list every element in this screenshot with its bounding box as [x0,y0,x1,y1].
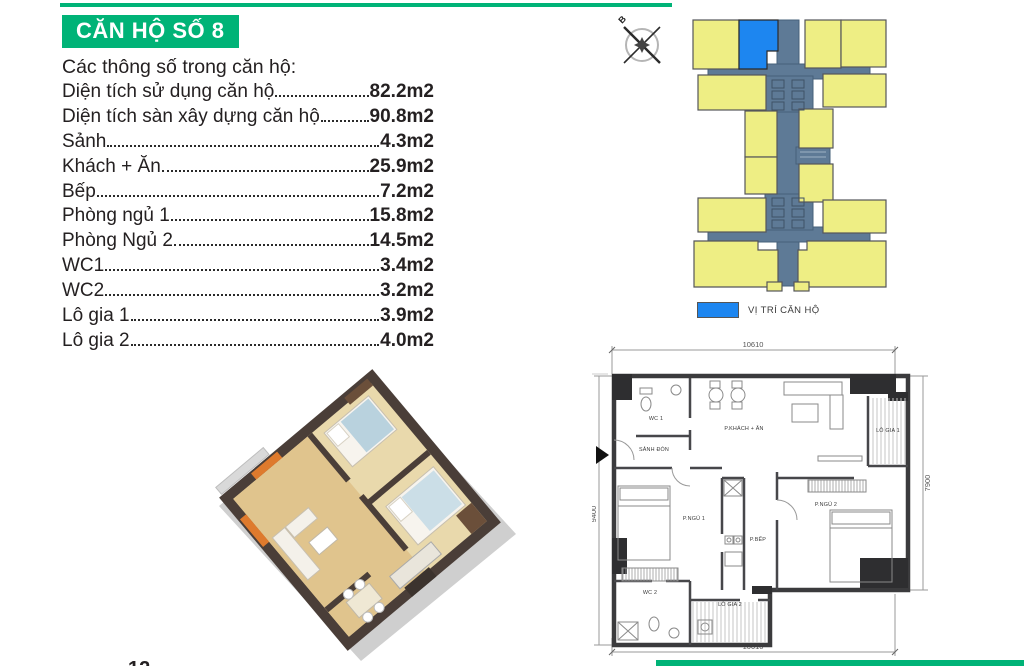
spec-row: Phòng ngủ 115.8m2 [62,204,434,229]
legend-label: VỊ TRÍ CĂN HỘ [748,305,820,316]
spec-row: Diện tích sàn xây dựng căn hộ90.8m2 [62,105,434,130]
page-number: 12 [128,659,168,666]
spec-row: Diện tích sử dụng căn hộ82.2m2 [62,80,434,105]
spec-row: WC13.4m2 [62,254,434,279]
bottom-divider-rule [656,660,1024,666]
spec-row: WC23.2m2 [62,279,434,304]
dotted-leader [275,95,368,97]
building-site-plan [688,12,893,297]
spec-value: 3.9m2 [380,304,434,329]
spec-label: Lô gia 2 [62,329,130,354]
spec-label: WC1 [62,254,104,279]
room-label-logia1: LÔ GIA 1 [876,427,900,434]
spec-value: 90.8m2 [370,105,434,130]
spec-label: Sảnh [62,130,106,155]
logia2-floor [692,602,768,643]
room-label-bep: P.BẾP [750,536,766,543]
legend: VỊ TRÍ CĂN HỘ [697,302,820,318]
spec-row: Lô gia 24.0m2 [62,329,434,354]
dotted-leader [162,170,369,172]
spec-label: Khách + Ăn [62,155,161,180]
spec-value: 14.5m2 [370,229,434,254]
room-label-sanh-don: SẢNH ĐÓN [639,446,669,453]
spec-value: 82.2m2 [370,80,434,105]
spec-row: Phòng Ngủ 214.5m2 [62,229,434,254]
dotted-leader [174,244,369,246]
dim-right: 7900 [923,475,932,492]
top-divider-rule [60,3,672,7]
dotted-leader [107,145,379,147]
dotted-leader [321,120,369,122]
spec-row: Lô gia 13.9m2 [62,304,434,329]
dim-left: 9400 [592,506,598,523]
dim-top: 10610 [743,340,764,349]
spec-label: Lô gia 1 [62,304,130,329]
room-label-khach-an: P.KHÁCH + ĂN [724,425,763,432]
spec-row: Bếp7.2m2 [62,180,434,205]
brochure-page: CĂN HỘ SỐ 8 Các thông số trong căn hộ: D… [0,0,1024,666]
spec-label: WC2 [62,279,104,304]
spec-label: Diện tích sử dụng căn hộ [62,80,274,105]
spec-label: Phòng Ngủ 2 [62,229,173,254]
dotted-leader [171,219,369,221]
apartment-2d-floorplan: 10610 10610 9400 7900 [592,338,954,660]
spec-label: Diện tích sàn xây dựng căn hộ [62,105,320,130]
spec-label: Bếp [62,180,96,205]
spec-value: 25.9m2 [370,155,434,180]
entrance-arrow-icon [596,446,609,464]
spec-value: 4.0m2 [380,329,434,354]
dotted-leader [131,319,380,321]
spec-value: 7.2m2 [380,180,434,205]
room-label-wc1: WC 1 [649,416,663,422]
spec-value: 4.3m2 [380,130,434,155]
spec-list: Các thông số trong căn hộ: Diện tích sử … [62,55,434,354]
dotted-leader [105,294,379,296]
spec-value: 3.4m2 [380,254,434,279]
dotted-leader [105,269,379,271]
room-label-ngu2: P.NGỦ 2 [815,501,837,508]
dotted-leader [131,344,380,346]
spec-value: 15.8m2 [370,204,434,229]
room-label-ngu1: P.NGỦ 1 [683,515,705,522]
compass-label: B [616,13,628,25]
spec-value: 3.2m2 [380,279,434,304]
room-label-logia2: LÔ GIA 2 [718,601,742,608]
spec-label: Phòng ngủ 1 [62,204,170,229]
compass-north-icon: B [612,12,670,70]
room-label-wc2: WC 2 [643,590,657,596]
spec-row: Sảnh4.3m2 [62,130,434,155]
apartment-title: CĂN HỘ SỐ 8 [62,15,239,48]
highlighted-unit [739,20,778,69]
spec-list-header: Các thông số trong căn hộ: [62,55,434,80]
legend-color-swatch [697,302,739,318]
dotted-leader [97,195,379,197]
apartment-3d-render [185,352,550,666]
spec-row: Khách + Ăn25.9m2 [62,155,434,180]
